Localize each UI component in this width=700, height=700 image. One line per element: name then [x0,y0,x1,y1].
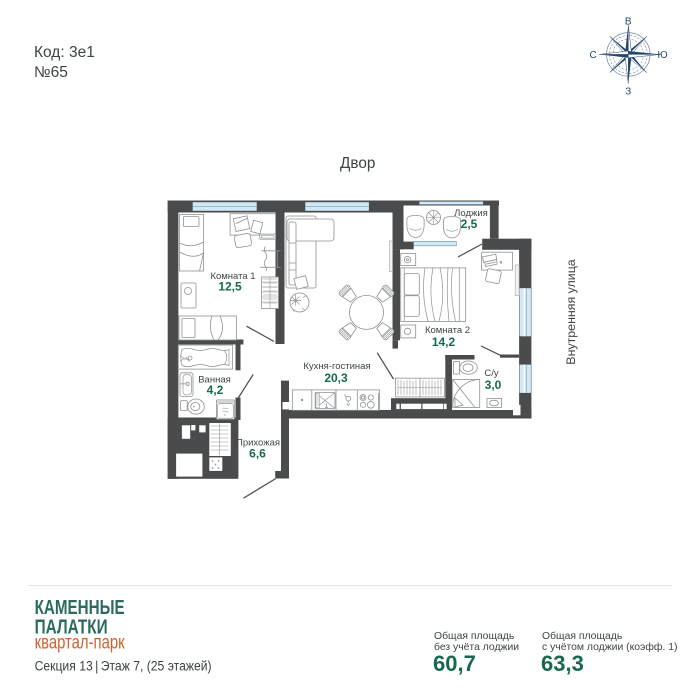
svg-text:Внутренняя улица: Внутренняя улица [564,259,578,364]
svg-text:63,3: 63,3 [541,651,584,676]
svg-text:12,5: 12,5 [218,280,242,294]
svg-text:20,3: 20,3 [324,371,348,385]
svg-text:С: С [590,50,597,61]
svg-text:В: В [625,16,632,27]
svg-text:Секция 13 | Этаж 7, (25 этажей: Секция 13 | Этаж 7, (25 этажей) [35,659,212,675]
svg-text:Ю: Ю [658,50,668,61]
svg-text:З: З [625,87,631,98]
svg-text:Общая площадь: Общая площадь [434,630,514,642]
svg-text:Двор: Двор [340,155,375,172]
svg-text:№65: №65 [34,64,68,81]
svg-text:квартал-парк: квартал-парк [35,632,126,653]
svg-text:Код: 3е1: Код: 3е1 [34,44,95,61]
svg-text:3,0: 3,0 [485,378,502,392]
svg-text:Общая площадь: Общая площадь [542,630,622,642]
svg-text:60,7: 60,7 [433,651,476,676]
svg-text:14,2: 14,2 [432,335,456,349]
svg-text:6,6: 6,6 [249,446,266,460]
svg-text:2,5: 2,5 [461,217,478,231]
svg-text:4,2: 4,2 [207,383,224,397]
